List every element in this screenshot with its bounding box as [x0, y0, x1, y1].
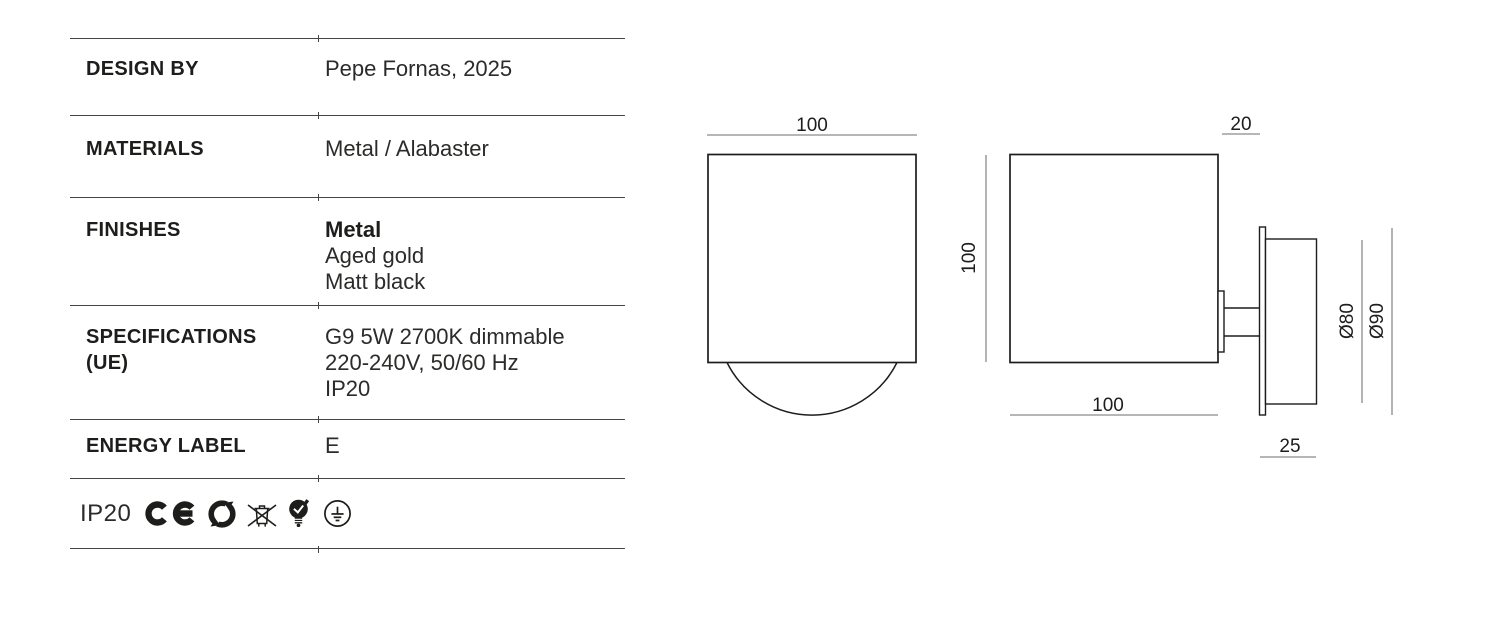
side-view: 20 100 25 Ø80 Ø90 — [1010, 114, 1392, 457]
side-inner-dia-dim-label: Ø80 — [1337, 303, 1358, 339]
side-wall-plate — [1260, 227, 1266, 415]
side-lamp-body — [1010, 155, 1218, 363]
product-spec-sheet: DESIGN BY Pepe Fornas, 2025 MATERIALS Me… — [0, 0, 1485, 622]
front-height-dim-label: 100 — [959, 242, 980, 274]
front-diffuser-dome — [727, 363, 897, 416]
front-width-dim-label: 100 — [796, 115, 828, 136]
side-depth-dim-label: 100 — [1092, 395, 1124, 416]
side-mount-flange — [1218, 291, 1224, 352]
technical-drawings: 100 100 20 100 25 Ø80 Ø90 — [0, 0, 1485, 622]
front-view: 100 100 — [707, 115, 986, 415]
side-canopy-depth-dim-label: 25 — [1279, 436, 1300, 457]
side-canopy — [1266, 239, 1317, 404]
side-outer-dia-dim-label: Ø90 — [1367, 303, 1388, 339]
front-lamp-body — [708, 155, 916, 363]
side-wall-gap-dim-label: 20 — [1230, 114, 1251, 135]
